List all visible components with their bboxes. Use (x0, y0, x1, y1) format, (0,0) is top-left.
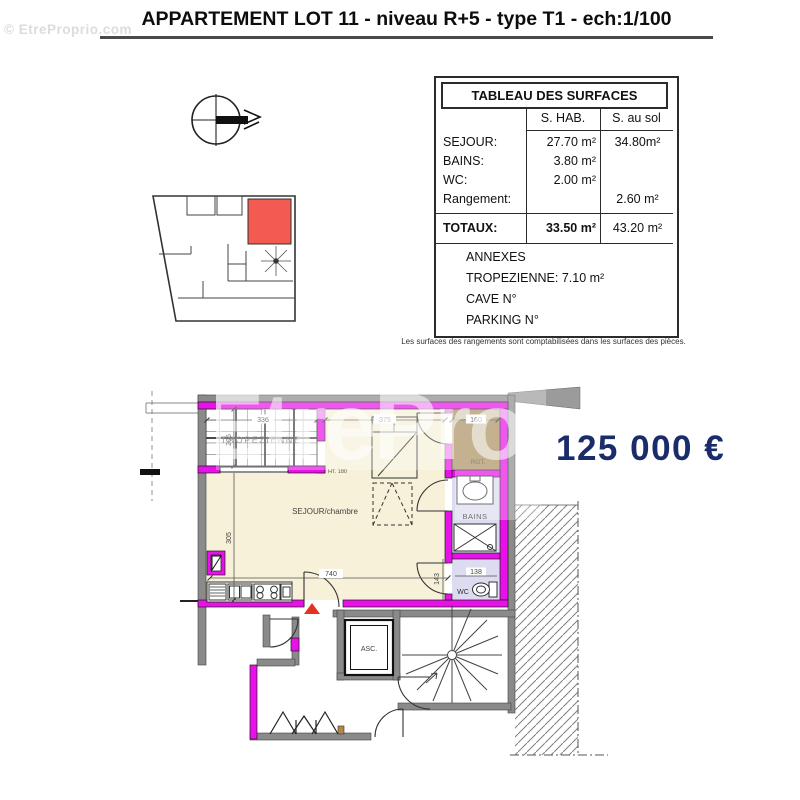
label-rgt: RGT. (471, 459, 486, 466)
row-hab-value: 3.80 m² (524, 154, 596, 168)
dim-160: 160 (470, 417, 482, 424)
price: 125 000 € (556, 429, 725, 469)
label-bains: BAINS (462, 512, 487, 521)
north-arrow-icon (186, 84, 268, 154)
totals-sol-value: 43.20 m² (602, 221, 673, 235)
annexes-title: ANNEXES (466, 250, 526, 264)
row-hab-value: 2.00 m² (524, 173, 596, 187)
table-divider (526, 130, 673, 131)
dim-740: 740 (325, 571, 337, 578)
row-hab-value: 27.70 m² (524, 135, 596, 149)
label-asc: ASC. (361, 646, 377, 653)
surfaces-table-title: TABLEAU DES SURFACES (441, 82, 668, 109)
col-header-s-hab: S. HAB. (526, 111, 600, 125)
floor-plan: 336 375 160 740 138 205 305 143 HT. 180 … (140, 383, 610, 778)
annexes-line: TROPEZIENNE: 7.10 m² (466, 271, 604, 285)
kitchen-counter (207, 582, 292, 602)
label-sejour: SEJOUR/chambre (292, 507, 358, 516)
dim-143: 143 (434, 573, 441, 585)
washbasin (457, 476, 493, 504)
page-title: APPARTEMENT LOT 11 - niveau R+5 - type T… (100, 8, 713, 39)
dim-305: 305 (226, 532, 233, 544)
page: © EtreProprio.com APPARTEMENT LOT 11 - n… (0, 0, 800, 800)
row-label: BAINS: (443, 154, 484, 168)
stairs-section-zigzag (270, 712, 344, 734)
row-sol-value: 2.60 m² (602, 192, 673, 206)
annexes-line: CAVE N° (466, 292, 517, 306)
key-plan-stair (261, 246, 291, 276)
col-header-s-au-sol: S. au sol (600, 111, 673, 125)
totals-label: TOTAUX: (443, 221, 497, 235)
highlighted-lot (248, 199, 291, 244)
toilet (473, 582, 498, 597)
dim-375: 375 (379, 417, 391, 424)
table-divider (600, 108, 601, 244)
entrance-arrow (304, 603, 320, 614)
dim-ht180: HT. 180 (328, 469, 347, 475)
hatched-area (510, 501, 608, 755)
totals-hab-value: 33.50 m² (524, 221, 596, 235)
label-wc: WC (457, 589, 469, 596)
annexes-line: PARKING N° (466, 313, 539, 327)
key-plan (143, 186, 318, 336)
row-sol-value: 34.80m² (602, 135, 673, 149)
row-label: Rangement: (443, 192, 511, 206)
dim-336: 336 (257, 417, 269, 424)
row-label: WC: (443, 173, 467, 187)
table-divider (436, 243, 673, 244)
table-footnote: Les surfaces des rangements sont comptab… (397, 337, 690, 346)
table-divider (436, 213, 673, 214)
surfaces-table: TABLEAU DES SURFACES S. HAB. S. au sol S… (434, 76, 679, 338)
dim-138: 138 (470, 569, 482, 576)
label-tropezienne: TROPEZIENNE (221, 435, 302, 445)
row-label: SEJOUR: (443, 135, 497, 149)
bathtub (454, 524, 496, 551)
